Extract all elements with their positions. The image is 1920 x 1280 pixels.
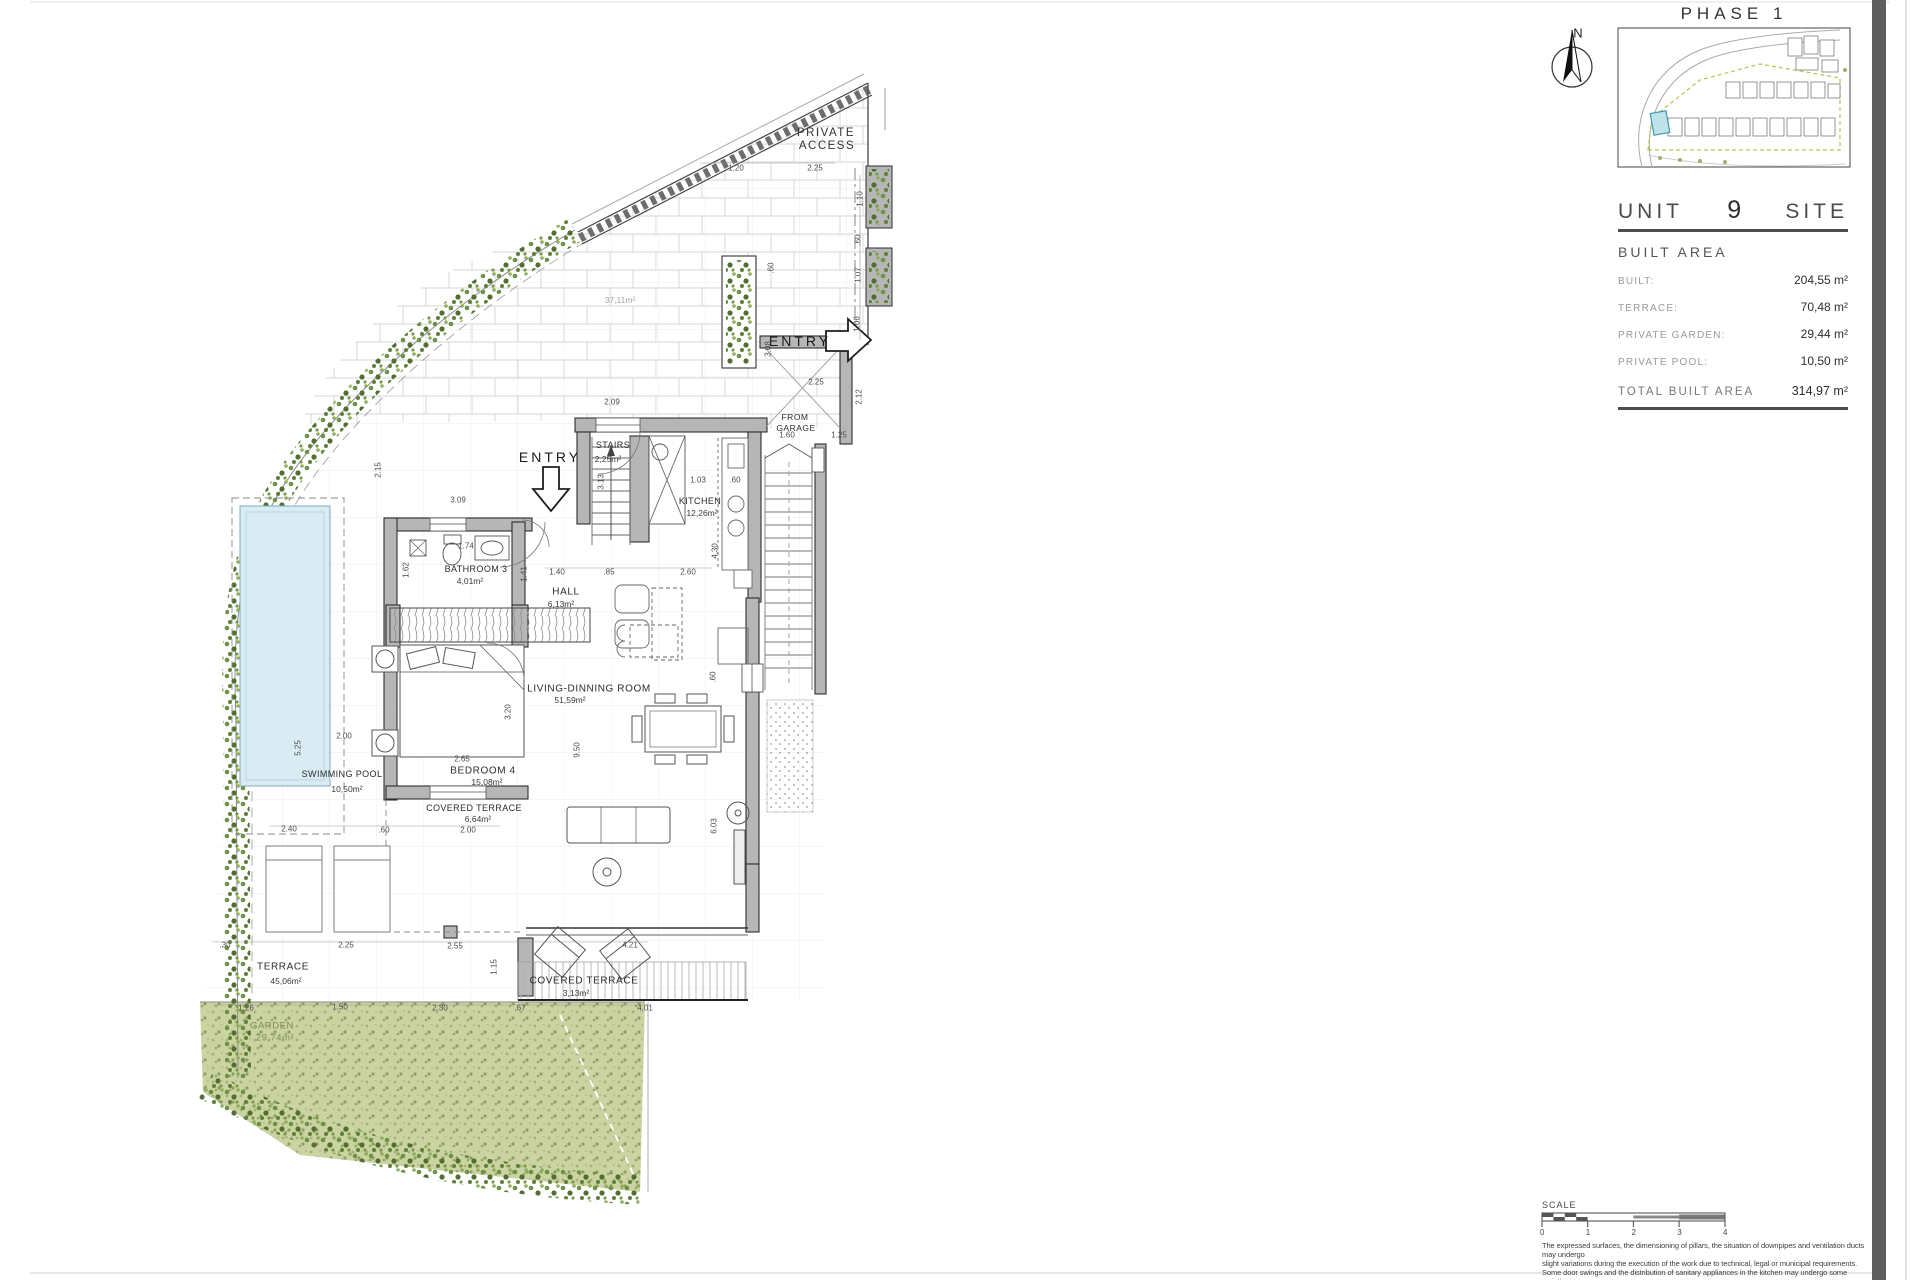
- floorplan-sheet: PRIVATEACCESSENTRYENTRYSTAIRS2,25m²KITCH…: [0, 0, 1920, 1280]
- scale-tick: 3: [1677, 1228, 1681, 1237]
- built-area-title: BUILT AREA: [1618, 244, 1848, 260]
- scale-tick: 4: [1723, 1228, 1727, 1237]
- area-row-value: 10,50 m²: [1801, 354, 1848, 368]
- area-row-label: BUILT:: [1618, 276, 1654, 287]
- disclaimer: The expressed surfaces, the dimensioning…: [1542, 1241, 1877, 1280]
- unit-number: 9: [1727, 196, 1741, 225]
- unit-row: UNIT 9 SITE: [1618, 196, 1848, 232]
- total-value: 314,97 m²: [1792, 384, 1848, 398]
- scale-label: SCALE: [1542, 1200, 1577, 1210]
- scale-tick: 2: [1632, 1228, 1636, 1237]
- area-row-label: PRIVATE POOL:: [1618, 357, 1708, 368]
- area-row-value: 29,44 m²: [1801, 327, 1848, 341]
- disclaimer-line: The expressed surfaces, the dimensioning…: [1542, 1241, 1877, 1259]
- area-row-value: 204,55 m²: [1794, 273, 1848, 287]
- area-row: BUILT: 204,55 m²: [1618, 273, 1848, 287]
- phase-title: PHASE 1: [1618, 4, 1850, 24]
- site-label: SITE: [1785, 200, 1848, 224]
- scale-tick: 0: [1540, 1228, 1544, 1237]
- scale-bar: [1542, 1213, 1725, 1227]
- floor-plan-drawing: [0, 0, 1920, 1280]
- unit-label: UNIT: [1618, 200, 1683, 224]
- total-row: TOTAL BUILT AREA 314,97 m²: [1618, 384, 1848, 410]
- area-row: PRIVATE GARDEN: 29,44 m²: [1618, 327, 1848, 341]
- area-row: PRIVATE POOL: 10,50 m²: [1618, 354, 1848, 368]
- site-map: [1618, 28, 1850, 167]
- disclaimer-line: slight variations during the execution o…: [1542, 1259, 1877, 1268]
- highlighted-unit: [1650, 111, 1670, 135]
- scale-tick: 1: [1586, 1228, 1590, 1237]
- north-arrow: [1552, 30, 1592, 87]
- disclaimer-line: Some door swings and the distribution of…: [1542, 1268, 1877, 1280]
- total-label: TOTAL BUILT AREA: [1618, 386, 1754, 398]
- page-edge-bar: [1872, 0, 1886, 1280]
- area-row-value: 70,48 m²: [1801, 300, 1848, 314]
- area-row-label: PRIVATE GARDEN:: [1618, 330, 1726, 341]
- area-row: TERRACE: 70,48 m²: [1618, 300, 1848, 314]
- area-row-label: TERRACE:: [1618, 303, 1678, 314]
- title-block: UNIT 9 SITE BUILT AREA BUILT: 204,55 m² …: [1618, 196, 1848, 410]
- swimming-pool: [232, 498, 344, 834]
